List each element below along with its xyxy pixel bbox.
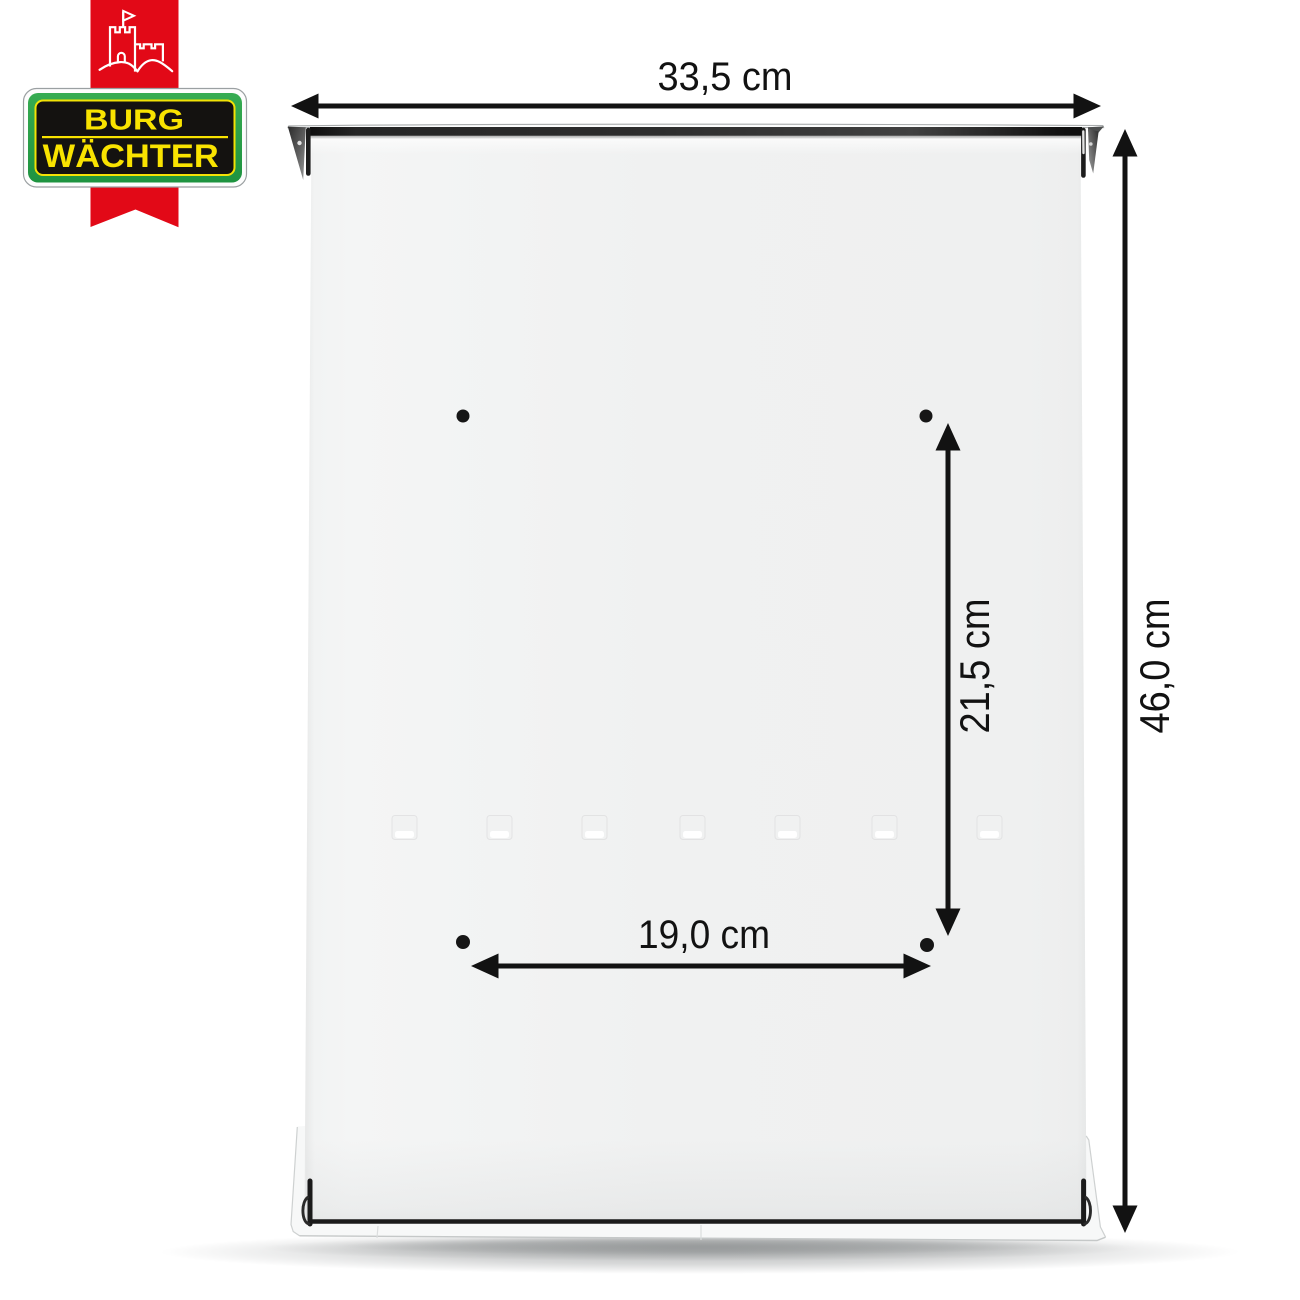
svg-text:WÄCHTER: WÄCHTER	[43, 138, 219, 174]
svg-text:21,5 cm: 21,5 cm	[951, 599, 998, 734]
svg-text:BURG: BURG	[84, 105, 184, 137]
svg-text:46,0 cm: 46,0 cm	[1131, 599, 1178, 734]
svg-text:19,0 cm: 19,0 cm	[638, 913, 770, 957]
svg-text:33,5 cm: 33,5 cm	[658, 55, 793, 99]
